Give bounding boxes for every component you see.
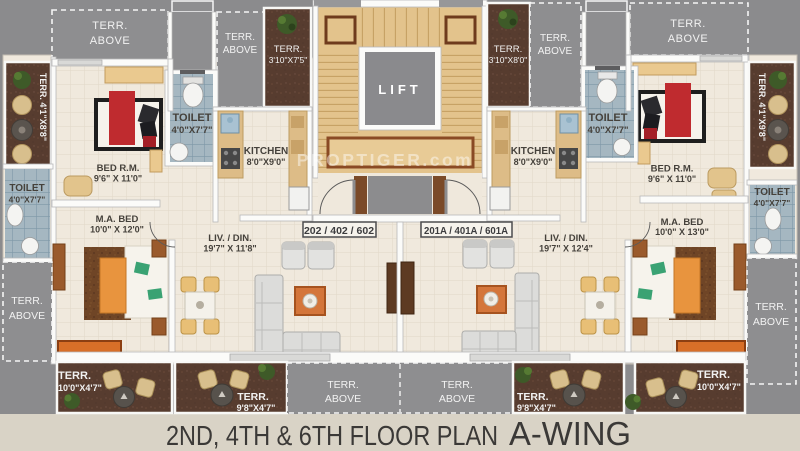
svg-text:4'0"X7'7": 4'0"X7'7" [754,198,791,208]
svg-text:ABOVE: ABOVE [538,46,573,57]
svg-text:ABOVE: ABOVE [439,393,475,405]
svg-text:TERR.: TERR. [697,369,730,381]
svg-text:TERR.: TERR. [494,44,523,55]
svg-text:TOILET: TOILET [9,183,44,194]
svg-text:19'7" X 11'8": 19'7" X 11'8" [203,244,256,254]
svg-text:10'0" X 13'0": 10'0" X 13'0" [655,227,709,237]
svg-text:TERR.: TERR. [92,20,128,32]
svg-text:TERR.: TERR. [327,379,359,391]
svg-text:LIV. / DIN.: LIV. / DIN. [544,233,587,244]
svg-text:3'10"X7'5": 3'10"X7'5" [269,55,308,65]
svg-text:TERR.: TERR. [540,33,570,44]
svg-text:TERR.: TERR. [58,370,91,382]
svg-text:TERR. 4'1"X8'8": TERR. 4'1"X8'8" [38,73,48,141]
svg-text:9'8"X4'7": 9'8"X4'7" [237,403,276,413]
svg-text:10'0" X 12'0": 10'0" X 12'0" [90,225,144,235]
svg-text:TERR. 4'1"X9'8": TERR. 4'1"X9'8" [757,73,767,141]
svg-text:TERR.: TERR. [517,391,549,403]
svg-text:A-WING: A-WING [509,415,631,451]
svg-text:8'0"X9'0": 8'0"X9'0" [247,157,286,167]
svg-text:TERR.: TERR. [755,301,787,313]
svg-text:4'0"X7'7": 4'0"X7'7" [588,125,629,136]
svg-text:TERR.: TERR. [11,295,43,307]
svg-text:TOILET: TOILET [173,112,212,124]
svg-text:BED R.M.: BED R.M. [651,164,694,175]
svg-text:201A / 401A / 601A: 201A / 401A / 601A [424,225,508,237]
svg-text:ABOVE: ABOVE [90,35,130,47]
svg-text:4'0"X7'7": 4'0"X7'7" [172,125,213,136]
svg-text:TERR.: TERR. [670,18,706,30]
svg-text:4'0"X7'7": 4'0"X7'7" [9,195,46,205]
svg-text:LIFT: LIFT [378,82,421,97]
svg-text:BED R.M.: BED R.M. [97,163,140,174]
svg-text:PROPTIGER.com: PROPTIGER.com [297,150,473,170]
svg-text:8'0"X9'0": 8'0"X9'0" [514,157,553,167]
svg-text:ABOVE: ABOVE [753,316,789,328]
svg-text:LIV. / DIN.: LIV. / DIN. [208,233,251,244]
svg-text:TERR.: TERR. [225,32,255,43]
svg-text:ABOVE: ABOVE [325,393,361,405]
svg-text:10'0"X4'7": 10'0"X4'7" [58,383,102,393]
svg-text:202 / 402 / 602: 202 / 402 / 602 [304,225,374,237]
svg-text:3'10"X8'0": 3'10"X8'0" [489,55,528,65]
svg-text:TERR.: TERR. [441,379,473,391]
svg-text:9'8"X4'7": 9'8"X4'7" [517,403,556,413]
svg-text:TOILET: TOILET [754,187,789,198]
svg-text:9'6" X 11'0": 9'6" X 11'0" [648,174,696,184]
svg-text:19'7" X 12'4": 19'7" X 12'4" [539,244,593,254]
svg-text:TOILET: TOILET [589,112,628,124]
svg-text:ABOVE: ABOVE [223,45,258,56]
svg-text:M.A. BED: M.A. BED [96,214,139,225]
svg-text:2ND, 4TH & 6TH FLOOR PLAN: 2ND, 4TH & 6TH FLOOR PLAN [166,420,498,451]
svg-text:10'0"X4'7": 10'0"X4'7" [697,382,741,392]
svg-text:TERR.: TERR. [237,391,269,403]
svg-text:KITCHEN: KITCHEN [244,146,288,157]
svg-text:TERR.: TERR. [274,44,303,55]
svg-text:KITCHEN: KITCHEN [511,146,555,157]
svg-text:9'6" X 11'0": 9'6" X 11'0" [94,174,142,184]
svg-text:ABOVE: ABOVE [9,310,45,322]
svg-text:ABOVE: ABOVE [668,33,708,45]
